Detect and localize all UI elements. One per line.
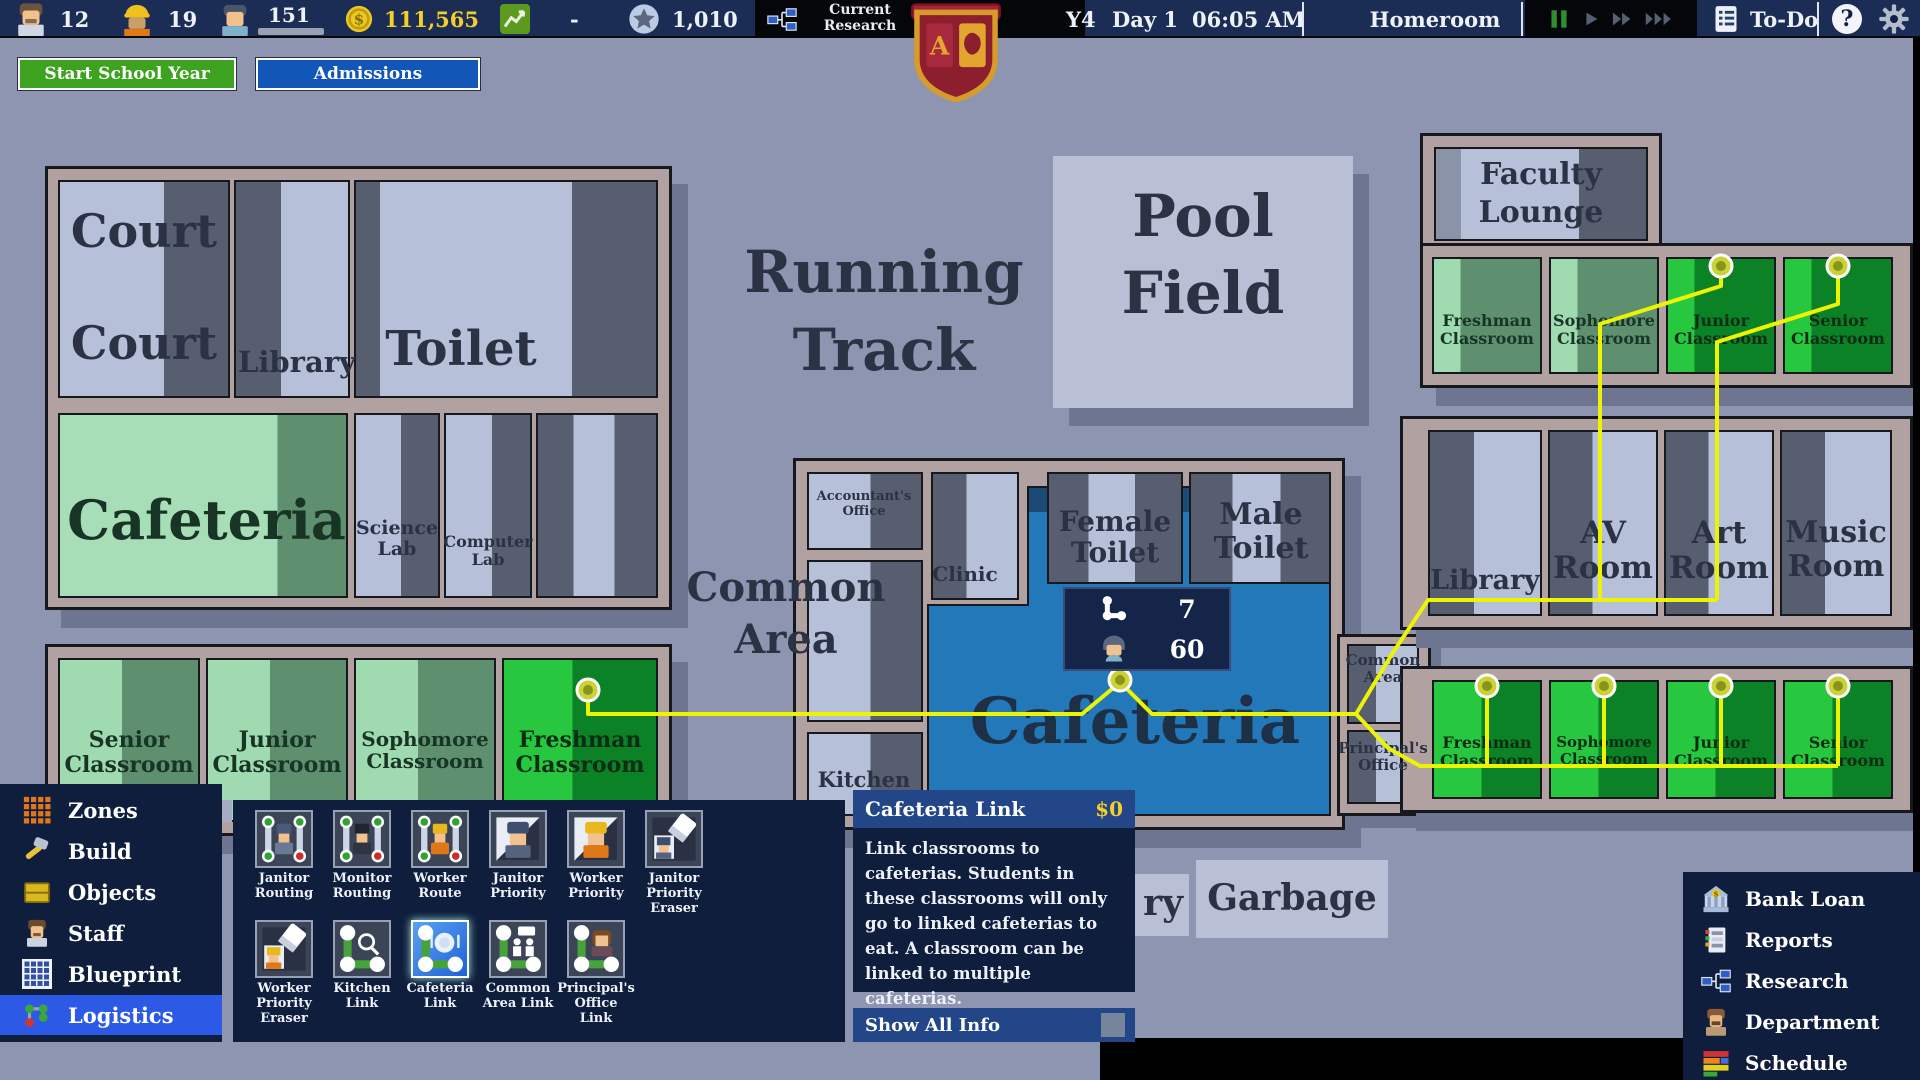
menu-label: Logistics — [68, 1003, 174, 1028]
blueprint-icon — [22, 959, 52, 989]
money-value: 111,565 — [384, 0, 479, 38]
zone-junior-bl: Junior Classroom — [206, 728, 348, 777]
tooltip-footer: Show All Info — [853, 1008, 1135, 1042]
menu-label: Bank Loan — [1745, 887, 1865, 911]
zone-sophomore-br: Sophomore Classroom — [1549, 734, 1659, 768]
menu-label: Zones — [68, 798, 138, 823]
menu-label: Schedule — [1745, 1051, 1848, 1075]
worker-priority-icon — [567, 810, 625, 868]
zone-music: Music Room — [1780, 516, 1892, 583]
rightmenu-item-bank-loan[interactable]: $ Bank Loan — [1683, 878, 1920, 919]
tool-kitchen-link[interactable]: Kitchen Link — [323, 920, 401, 1026]
svg-text:$: $ — [354, 11, 364, 29]
zone-library-left: Library — [238, 346, 348, 378]
pause-button[interactable] — [1546, 6, 1572, 32]
leftmenu-item-objects[interactable]: Objects — [0, 872, 222, 912]
zones-icon — [22, 795, 52, 825]
zone-senior-br: Senior Classroom — [1783, 734, 1893, 770]
zone-sophomore-tr: Sophomore Classroom — [1549, 312, 1659, 348]
rating-points: 1,010 — [672, 0, 738, 38]
zone-junior-br: Junior Classroom — [1666, 734, 1776, 770]
janitor-priority-icon — [489, 810, 547, 868]
tool-label: Worker Priority — [557, 871, 635, 901]
janitor-eraser-icon — [645, 810, 703, 868]
zone-female-toilet: Female Toilet — [1052, 506, 1178, 569]
zone-principals-office: Principal's Office — [1337, 740, 1429, 774]
help-button[interactable]: ? — [1832, 0, 1862, 38]
zone-sophomore-bl: Sophomore Classroom — [354, 728, 496, 773]
svg-text:A: A — [929, 32, 950, 61]
room-utility[interactable] — [536, 413, 658, 598]
tool-label: Worker Route — [401, 871, 479, 901]
management-menu: $ Bank Loan Reports Research Department … — [1683, 872, 1920, 1080]
menu-label: Reports — [1745, 928, 1833, 952]
department-icon — [1701, 1007, 1731, 1037]
common-link-icon — [489, 920, 547, 978]
zone-male-toilet: Male Toilet — [1196, 498, 1326, 565]
tool-worker-priority[interactable]: Worker Priority — [557, 810, 635, 916]
zone-junior-tr: Junior Classroom — [1666, 312, 1776, 348]
zone-senior-bl: Senior Classroom — [58, 728, 200, 777]
svg-text:$: $ — [1713, 889, 1718, 898]
menu-label: Department — [1745, 1010, 1879, 1034]
tool-label: Cafeteria Link — [401, 981, 479, 1011]
zone-computer-lab: Computer Lab — [442, 533, 534, 569]
day-label: Day 1 — [1112, 0, 1178, 38]
zone-accountants-office: Accountant's Office — [800, 490, 928, 519]
fast-forward-button[interactable] — [1610, 8, 1636, 30]
start-school-year-button[interactable]: Start School Year — [18, 58, 236, 90]
tool-label: Worker Priority Eraser — [245, 981, 323, 1026]
show-all-info-label: Show All Info — [865, 1015, 1101, 1036]
zone-pool-field-label: Pool Field — [1093, 178, 1313, 331]
research-icon — [1701, 966, 1731, 996]
menu-label: Blueprint — [68, 962, 181, 987]
help-icon: ? — [1832, 4, 1862, 34]
zone-library-right: Library — [1428, 566, 1542, 596]
leftmenu-item-build[interactable]: Build — [0, 831, 222, 871]
link-info-tooltip: 7 60 — [1063, 587, 1231, 671]
zone-faculty-lounge: Faculty Lounge — [1434, 156, 1648, 231]
logistics-icon — [22, 1000, 52, 1030]
tool-label: Janitor Priority Eraser — [635, 871, 713, 916]
tooltip-cost: $0 — [1095, 797, 1123, 821]
zone-clinic: Clinic — [915, 563, 1015, 585]
objects-icon — [22, 877, 52, 907]
tool-label: Janitor Routing — [245, 871, 323, 901]
zone-common-area-right: Common Area — [1337, 652, 1429, 686]
student-count-icon — [1099, 634, 1129, 664]
leftmenu-item-logistics[interactable]: Logistics — [0, 995, 222, 1035]
teacher-icon — [14, 2, 48, 36]
tool-worker-route[interactable]: Worker Route — [401, 810, 479, 916]
room-science-lab[interactable] — [354, 413, 440, 598]
tool-label: Janitor Priority — [479, 871, 557, 901]
tool-worker-priority-eraser[interactable]: Worker Priority Eraser — [245, 920, 323, 1026]
leftmenu-item-blueprint[interactable]: Blueprint — [0, 954, 222, 994]
tool-label: Monitor Routing — [323, 871, 401, 901]
cafeteria-link-tooltip: Cafeteria Link $0 Link classrooms to caf… — [853, 790, 1135, 1042]
student-capacity-bar — [258, 28, 324, 35]
tool-janitor-routing[interactable]: Janitor Routing — [245, 810, 323, 916]
leftmenu-item-zones[interactable]: Zones — [0, 790, 222, 830]
tooltip-title: Cafeteria Link — [865, 797, 1095, 821]
zone-cafeteria-center: Cafeteria — [945, 686, 1325, 758]
rightmenu-item-schedule[interactable]: Schedule — [1683, 1042, 1920, 1080]
leftmenu-item-staff[interactable]: Staff — [0, 913, 222, 953]
zone-court-2: Court — [64, 318, 224, 370]
fastest-forward-button[interactable] — [1644, 8, 1676, 30]
link-count-icon — [1099, 594, 1129, 624]
play-button[interactable] — [1580, 8, 1602, 30]
tool-label: Principal's Office Link — [557, 981, 635, 1026]
tooltip-body: Link classrooms to cafeterias. Students … — [853, 828, 1135, 992]
admissions-button[interactable]: Admissions — [256, 58, 480, 90]
janitor-routing-icon — [255, 810, 313, 868]
show-all-info-checkbox[interactable] — [1101, 1013, 1125, 1037]
worker-route-icon — [411, 810, 469, 868]
zone-cafeteria-left: Cafeteria — [64, 490, 349, 550]
tool-principals-office-link[interactable]: Principal's Office Link — [557, 920, 635, 1026]
teacher-count: 12 — [60, 0, 89, 38]
tool-common-area-link[interactable]: Common Area Link — [479, 920, 557, 1026]
todo-list-icon — [1712, 4, 1740, 34]
separator — [1817, 2, 1819, 36]
finance-chart-icon[interactable] — [500, 4, 530, 34]
worker-eraser-icon — [255, 920, 313, 978]
tooltip-header: Cafeteria Link $0 — [853, 790, 1135, 828]
room-computer-lab[interactable] — [444, 413, 532, 598]
zone-freshman-bl: Freshman Classroom — [502, 728, 658, 777]
kitchen-link-icon — [333, 920, 391, 978]
year-label: Y4 — [1066, 0, 1096, 38]
zone-toilet-left: Toilet — [366, 323, 556, 377]
rightmenu-item-department[interactable]: Department — [1683, 1001, 1920, 1042]
cafeteria-link-icon — [411, 920, 469, 978]
worker-count: 19 — [168, 0, 197, 38]
zone-court-1: Court — [64, 206, 224, 258]
student-icon — [218, 2, 252, 36]
tool-label: Kitchen Link — [323, 981, 401, 1011]
settings-gear-icon[interactable] — [1878, 3, 1910, 35]
zone-av: AV Room — [1548, 516, 1658, 585]
zone-art: Art Room — [1664, 516, 1774, 585]
tool-janitor-priority[interactable]: Janitor Priority — [479, 810, 557, 916]
menu-label: Staff — [68, 921, 124, 946]
separator — [1521, 2, 1523, 36]
period-label: Homeroom — [1355, 0, 1515, 38]
todo-label: To-Do — [1750, 7, 1818, 32]
menu-label: Research — [1745, 969, 1849, 993]
zone-senior-tr: Senior Classroom — [1783, 312, 1893, 348]
student-count: 60 — [1145, 635, 1229, 664]
bank-icon: $ — [1701, 884, 1731, 914]
menu-label: Build — [68, 839, 132, 864]
rightmenu-item-reports[interactable]: Reports — [1683, 919, 1920, 960]
zone-common-area-left: Common Area — [676, 562, 896, 666]
staff-icon — [22, 918, 52, 948]
net-value: - — [570, 0, 579, 38]
tool-janitor-priority-eraser[interactable]: Janitor Priority Eraser — [635, 810, 713, 916]
zone-kitchen: Kitchen — [800, 768, 928, 792]
reports-icon — [1701, 925, 1731, 955]
worker-icon — [120, 2, 154, 36]
rightmenu-item-research[interactable]: Research — [1683, 960, 1920, 1001]
separator — [1302, 2, 1304, 36]
link-count: 7 — [1145, 595, 1229, 624]
tool-label: Common Area Link — [479, 981, 557, 1011]
build-menu: Zones Build Objects Staff Blueprint Logi… — [0, 784, 222, 1042]
school-crest-logo: A — [908, 3, 1004, 107]
zone-running-track: Running Track — [714, 233, 1054, 390]
zone-science-lab: Science Lab — [352, 518, 442, 561]
monitor-routing-icon — [333, 810, 391, 868]
void-strip — [1100, 1038, 1700, 1080]
time-label: 06:05 AM — [1192, 0, 1305, 38]
current-research-label: Current Research — [805, 2, 915, 34]
zone-freshman-br: Freshman Classroom — [1432, 734, 1542, 770]
tool-monitor-routing[interactable]: Monitor Routing — [323, 810, 401, 916]
logistics-toolbar: Janitor Routing Monitor Routing Worker R… — [233, 800, 845, 1042]
menu-label: Objects — [68, 880, 156, 905]
principal-link-icon — [567, 920, 625, 978]
todo-button[interactable]: To-Do — [1712, 0, 1818, 38]
playback-controls — [1525, 0, 1697, 38]
schedule-icon — [1701, 1048, 1731, 1078]
build-icon — [22, 836, 52, 866]
rating-star-icon — [628, 3, 660, 35]
zone-garbage-label: Garbage — [1196, 878, 1388, 918]
research-icon — [767, 8, 797, 31]
money-icon: $ — [344, 4, 374, 34]
zone-freshman-t r: Freshman Classroom — [1432, 312, 1542, 348]
tool-cafeteria-link[interactable]: Cafeteria Link — [401, 920, 479, 1026]
